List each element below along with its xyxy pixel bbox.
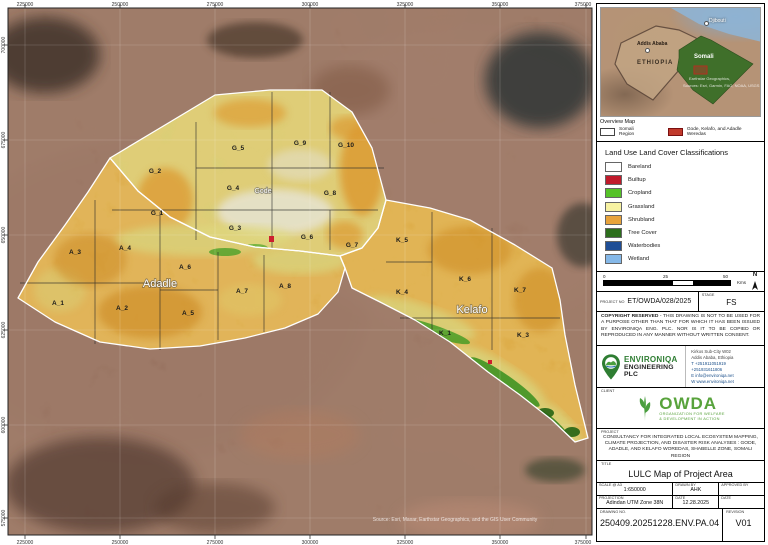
project-label: PROJECT [601, 430, 760, 434]
project-number-section: PROJECT No ET/OWDA/028/2025 STAGE FS [597, 292, 764, 312]
legend-label: Builtup [628, 177, 646, 183]
legend-item: Tree Cover [605, 228, 756, 238]
project-no-label: PROJECT No [600, 300, 624, 304]
cell-label: G_4 [227, 185, 240, 192]
legend-label: Wetland [628, 256, 649, 262]
legend-item: Cropland [605, 188, 756, 198]
main-map: G_2 G_5 G_9 G_10 G_4 G_8 G_1 G_3 G_6 G_7… [0, 0, 594, 545]
map-canvas: G_2 G_5 G_9 G_10 G_4 G_8 G_1 G_3 G_6 G_7… [0, 0, 594, 545]
company-contact: Kirkos Sub-City W02 Addis Ababa, Ethiopi… [685, 346, 764, 387]
cell-label: K_7 [514, 287, 526, 294]
coord-label: 300000 [302, 2, 319, 8]
project-description: CONSULTANCY FOR INTEGRATED LOCAL ECOSYST… [601, 435, 760, 460]
djibouti-label: Djibouti [709, 18, 726, 24]
legend-item: Bareland [605, 162, 756, 172]
coord-label: 300000 [302, 540, 319, 545]
cell-label: G_9 [294, 140, 307, 147]
revision-label: REVISION [726, 510, 761, 514]
cell-label: A_5 [182, 310, 194, 317]
contact-line: W www.environiqa.net [691, 379, 762, 385]
cell-label: K_6 [459, 276, 471, 283]
approved-by-label: APPROVED BY [721, 483, 762, 487]
drawing-title-section: TITLE LULC Map of Project Area [597, 461, 764, 483]
drawing-no-label: DRAWING No. [600, 510, 719, 514]
client-name: OWDA [659, 395, 725, 412]
coord-label: 250000 [112, 2, 129, 8]
environiqa-logo-icon [602, 353, 620, 381]
coord-label: 225000 [17, 540, 34, 545]
overview-map-canvas [601, 8, 761, 114]
coord-label: 650000 [1, 226, 7, 243]
cell-label: K_5 [396, 237, 408, 244]
weredas-extent-box [694, 66, 707, 74]
drawing-no-value: 250409.20251228.ENV.PA.04 [600, 518, 719, 528]
scale-unit: Kms [737, 280, 746, 285]
coord-label: 375000 [575, 2, 592, 8]
cell-label: G_6 [301, 234, 314, 241]
coord-label: 675000 [1, 131, 7, 148]
company-section: ENVIRONIQA ENGINEERING PLC Kirkos Sub-Ci… [597, 346, 764, 388]
coord-label: 325000 [397, 540, 414, 545]
ethiopia-label: ETHIOPIA [637, 60, 673, 66]
shrubland-swatch [605, 215, 622, 225]
scalebar-section: 0 25 50 Kms N [597, 272, 764, 292]
somali-label: Somali [694, 54, 714, 60]
somali-region-legend-label: Somali Region [619, 127, 650, 137]
wereda-label-kelafo: Kelafo [456, 304, 487, 316]
cell-label: A_8 [279, 283, 291, 290]
drawing-title: LULC Map of Project Area [601, 469, 760, 479]
coord-label: 250000 [112, 540, 129, 545]
lulc-map-sheet: { "map": { "coords": { "top": ["225000",… [0, 0, 768, 545]
cell-label: G_7 [346, 242, 359, 249]
projection-value: Adindan UTM Zone 38N [599, 500, 670, 506]
scale-tick-25: 25 [663, 274, 668, 279]
wetland-swatch [605, 254, 622, 264]
coord-label: 350000 [492, 2, 509, 8]
coord-label: 275000 [207, 540, 224, 545]
legend-label: Cropland [628, 190, 652, 196]
waterbodies-swatch [605, 241, 622, 251]
title-label: TITLE [601, 462, 760, 466]
north-label: N [751, 273, 759, 278]
scale-tick-50: 50 [723, 274, 728, 279]
date2-label: DATE [721, 496, 762, 500]
overview-map-section: Djibouti Addis Ababa ETHIOPIA Somali Ear… [597, 4, 764, 142]
coord-label: 275000 [207, 2, 224, 8]
addis-ababa-label: Addis Ababa [637, 41, 667, 47]
legend-item: Shrubland [605, 215, 756, 225]
basemap-attribution: Source: Esri, Maxar, Earthstar Geographi… [373, 517, 538, 523]
weredas-legend-label: Gode, Kelafo, and Adadle Weredas [687, 127, 761, 137]
cell-label: K_1 [439, 330, 451, 337]
cell-label: A_7 [236, 288, 248, 295]
coord-label: 625000 [1, 321, 7, 338]
coord-label: 350000 [492, 540, 509, 545]
coord-label: 575000 [1, 509, 7, 526]
cell-label: G_5 [232, 145, 245, 152]
cell-label: G_2 [149, 168, 162, 175]
company-name: ENVIRONIQA [624, 355, 683, 364]
builtup-swatch [605, 175, 622, 185]
project-no-value: ET/OWDA/028/2025 [627, 298, 691, 305]
company-name-2: ENGINEERING PLC [624, 364, 683, 378]
cell-label: G_3 [229, 225, 242, 232]
legend-item: Grassland [605, 202, 756, 212]
coord-label: 375000 [575, 540, 592, 545]
stage-label: STAGE [702, 293, 761, 297]
lulc-legend-title: Land Use Land Cover Classifications [605, 148, 756, 157]
coord-label: 700000 [1, 36, 7, 53]
cell-label: A_1 [52, 300, 64, 307]
grassland-swatch [605, 202, 622, 212]
bareland-swatch [605, 162, 622, 172]
overview-attribution-1: Earthstar Geographics, [689, 76, 730, 81]
metadata-table: SCALE @ A31:650000 DRAWN BYAHK APPROVED … [597, 483, 764, 509]
scale-value: 1:650000 [599, 487, 670, 493]
copyright-section: COPYRIGHT RESERVED - THIS DRAWING IS NOT… [597, 312, 764, 346]
coord-label: 225000 [17, 2, 34, 8]
legend-item: Waterbodies [605, 241, 756, 251]
cell-label: G_8 [324, 190, 337, 197]
lulc-legend-section: Land Use Land Cover Classifications Bare… [597, 142, 764, 272]
overview-legend: Somali Region Gode, Kelafo, and Adadle W… [600, 127, 761, 137]
coord-label: 325000 [397, 2, 414, 8]
cell-label: A_3 [69, 249, 81, 256]
wereda-label-adadle: Adadle [143, 278, 177, 290]
scale-bar [603, 280, 731, 286]
title-block-panel: Djibouti Addis Ababa ETHIOPIA Somali Ear… [596, 3, 765, 542]
somali-region-swatch [600, 128, 615, 136]
client-label: CLIENT [601, 389, 760, 393]
overview-map-title: Overview Map [600, 119, 761, 125]
addis-ababa-marker [645, 48, 650, 53]
legend-label: Waterbodies [628, 243, 660, 249]
cropland-swatch [605, 188, 622, 198]
overview-attribution-2: Sources: Esri, Garmin, FAO, NOAA, USGS [683, 83, 759, 88]
wereda-label-gode: Gode [254, 188, 271, 195]
revision-value: V01 [726, 518, 761, 528]
legend-label: Grassland [628, 204, 654, 210]
project-description-section: PROJECT CONSULTANCY FOR INTEGRATED LOCAL… [597, 429, 764, 461]
drawing-number-section: DRAWING No. 250409.20251228.ENV.PA.04 RE… [597, 509, 764, 541]
stage-value: FS [702, 298, 761, 307]
somali-region-polygon [677, 36, 753, 104]
drawn-by-value: AHK [675, 487, 716, 493]
cell-label: K_3 [517, 332, 529, 339]
legend-item: Builtup [605, 175, 756, 185]
client-subtitle-2: & DEVELOPMENT IN ACTION [659, 417, 725, 422]
legend-label: Tree Cover [628, 230, 657, 236]
legend-label: Bareland [628, 164, 651, 170]
cell-label: A_2 [116, 305, 128, 312]
overview-map-inset: Djibouti Addis Ababa ETHIOPIA Somali Ear… [600, 7, 761, 117]
cell-label: A_6 [179, 264, 191, 271]
client-section: CLIENT OWDA ORGANIZATION FOR WELFARE & D… [597, 388, 764, 429]
legend-item: Wetland [605, 254, 756, 264]
legend-label: Shrubland [628, 217, 654, 223]
cell-label: G_1 [151, 210, 164, 217]
cell-label: G_10 [338, 142, 354, 149]
scale-tick-0: 0 [603, 274, 606, 279]
date-value: 12.28.2025 [675, 500, 716, 506]
builtup-kelafo-town [488, 360, 492, 364]
weredas-swatch [668, 128, 683, 136]
tree-cover-swatch [605, 228, 622, 238]
copyright-bold: COPYRIGHT RESERVED [601, 314, 658, 319]
cell-label: A_4 [119, 245, 131, 252]
cell-label: K_4 [396, 289, 408, 296]
coord-label: 600000 [1, 416, 7, 433]
builtup-gode-town [269, 236, 274, 242]
owda-logo-icon [636, 395, 654, 421]
